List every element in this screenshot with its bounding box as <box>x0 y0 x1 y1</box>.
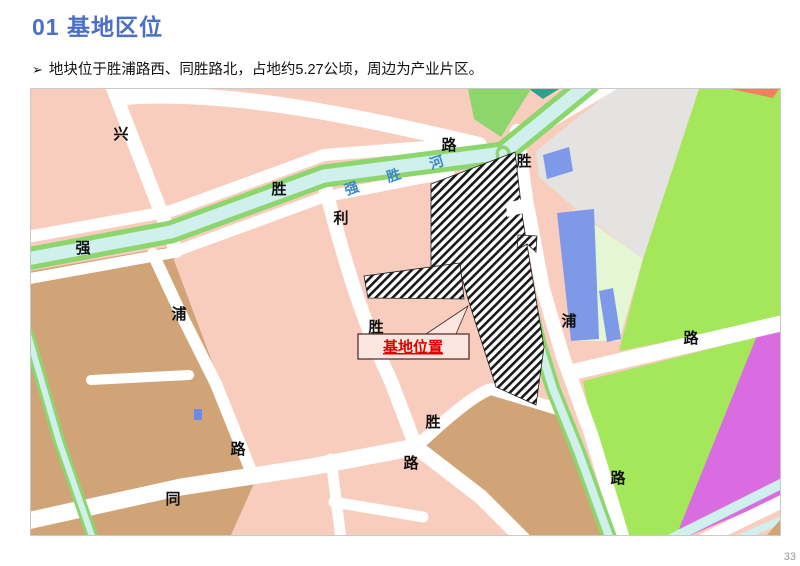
location-map: 兴 路 胜 胜 利 强 浦 胜 浦 路 胜 路 路 同 路 强 胜 河 <box>30 88 781 536</box>
road-label: 浦 <box>561 312 576 330</box>
road-label: 路 <box>610 469 626 487</box>
road-label: 强 <box>75 240 90 257</box>
bullet-line: ➢地块位于胜浦路西、同胜路北，占地约5.27公顷，周边为产业片区。 <box>32 58 483 79</box>
bullet-text: 地块位于胜浦路西、同胜路北，占地约5.27公顷，周边为产业片区。 <box>49 62 483 78</box>
road-label: 同 <box>165 491 180 508</box>
road-label: 路 <box>441 136 457 154</box>
bullet-arrow-icon: ➢ <box>32 62 43 77</box>
slide: 01 基地区位 ➢地块位于胜浦路西、同胜路北，占地约5.27公顷，周边为产业片区… <box>0 0 800 566</box>
road-label: 路 <box>403 454 419 472</box>
road-label: 路 <box>683 329 699 347</box>
road-label: 兴 <box>113 126 128 143</box>
callout-label: 基地位置 <box>382 338 443 356</box>
road-label: 胜 <box>516 153 531 170</box>
page-number: 33 <box>784 551 796 563</box>
road-label: 利 <box>333 209 348 227</box>
road-label: 路 <box>230 440 246 458</box>
location-map-svg: 兴 路 胜 胜 利 强 浦 胜 浦 路 胜 路 路 同 路 强 胜 河 <box>31 89 780 535</box>
parcel-blue-small <box>194 409 202 420</box>
road-label: 胜 <box>425 414 440 431</box>
road-label: 胜 <box>271 181 286 198</box>
road-cul-de-sac <box>91 375 189 380</box>
road-label: 浦 <box>171 305 186 323</box>
page-title: 01 基地区位 <box>32 8 163 42</box>
